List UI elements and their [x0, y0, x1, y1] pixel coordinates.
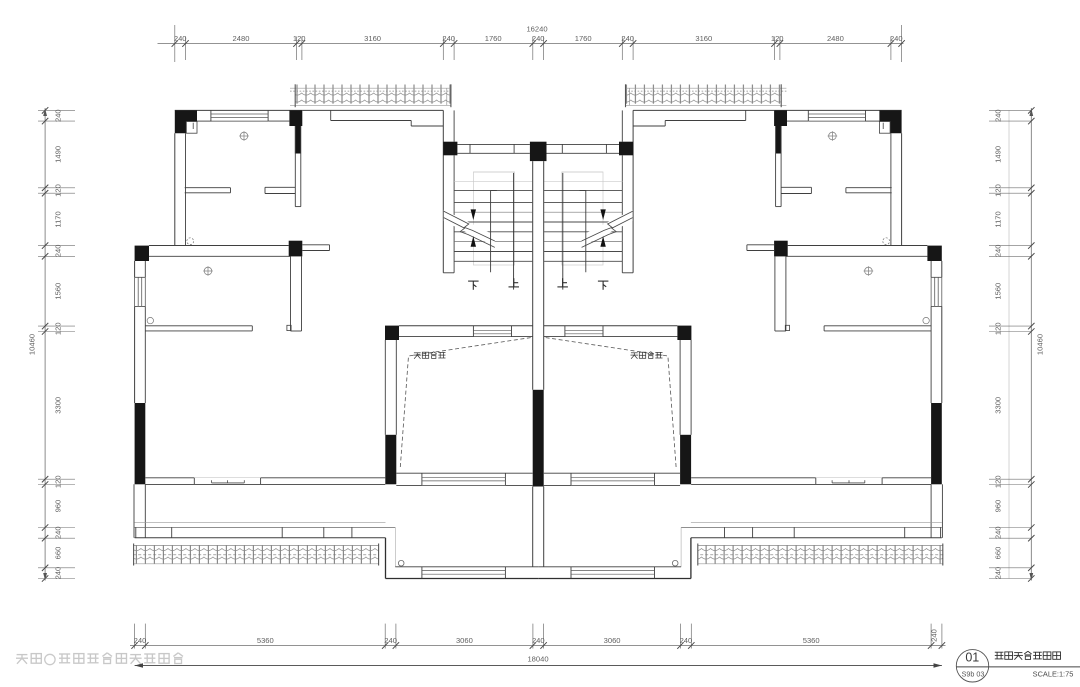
svg-text:16240: 16240 — [526, 25, 547, 34]
svg-text:660: 660 — [54, 547, 63, 560]
svg-text:3160: 3160 — [695, 34, 712, 43]
svg-text:3300: 3300 — [54, 397, 63, 414]
svg-text:S9b 03: S9b 03 — [962, 670, 985, 679]
svg-text:240: 240 — [621, 34, 634, 43]
svg-text:1490: 1490 — [54, 146, 63, 163]
svg-text:240: 240 — [994, 245, 1003, 258]
svg-text:01: 01 — [965, 651, 979, 665]
svg-text:18040: 18040 — [527, 655, 548, 664]
svg-text:3300: 3300 — [994, 397, 1003, 414]
svg-text:240: 240 — [134, 636, 147, 645]
svg-text:1170: 1170 — [994, 211, 1003, 227]
svg-text:SCALE:1:75: SCALE:1:75 — [1033, 670, 1074, 679]
svg-text:1560: 1560 — [994, 283, 1003, 300]
svg-text:240: 240 — [54, 109, 63, 122]
svg-text:240: 240 — [442, 34, 455, 43]
svg-text:120: 120 — [54, 475, 63, 488]
svg-text:240: 240 — [994, 526, 1003, 539]
svg-text:3160: 3160 — [364, 34, 381, 43]
svg-text:240: 240 — [680, 636, 693, 645]
svg-text:2480: 2480 — [233, 34, 250, 43]
svg-text:240: 240 — [930, 629, 939, 642]
svg-text:240: 240 — [890, 34, 903, 43]
svg-text:120: 120 — [994, 184, 1003, 197]
svg-text:10460: 10460 — [28, 334, 37, 355]
svg-text:1560: 1560 — [54, 283, 63, 300]
svg-text:240: 240 — [54, 245, 63, 258]
svg-text:5360: 5360 — [803, 636, 820, 645]
svg-text:240: 240 — [174, 34, 187, 43]
svg-text:2480: 2480 — [827, 34, 844, 43]
svg-text:10460: 10460 — [1036, 334, 1045, 355]
svg-text:960: 960 — [994, 500, 1003, 513]
svg-text:120: 120 — [994, 475, 1003, 488]
svg-text:120: 120 — [54, 184, 63, 197]
svg-text:960: 960 — [54, 500, 63, 513]
svg-text:240: 240 — [384, 636, 397, 645]
svg-text:240: 240 — [532, 636, 545, 645]
svg-text:1170: 1170 — [54, 211, 63, 227]
svg-text:660: 660 — [994, 547, 1003, 560]
svg-text:120: 120 — [994, 322, 1003, 335]
svg-text:1490: 1490 — [994, 146, 1003, 163]
svg-text:120: 120 — [293, 34, 306, 43]
svg-text:3060: 3060 — [456, 636, 473, 645]
svg-text:1760: 1760 — [575, 34, 592, 43]
svg-text:240: 240 — [994, 109, 1003, 122]
svg-text:3060: 3060 — [604, 636, 621, 645]
svg-text:1760: 1760 — [485, 34, 502, 43]
svg-text:240: 240 — [54, 526, 63, 539]
svg-text:240: 240 — [532, 34, 545, 43]
svg-text:240: 240 — [994, 567, 1003, 580]
svg-text:240: 240 — [54, 567, 63, 580]
svg-text:5360: 5360 — [257, 636, 274, 645]
svg-text:120: 120 — [54, 322, 63, 335]
svg-text:120: 120 — [771, 34, 784, 43]
